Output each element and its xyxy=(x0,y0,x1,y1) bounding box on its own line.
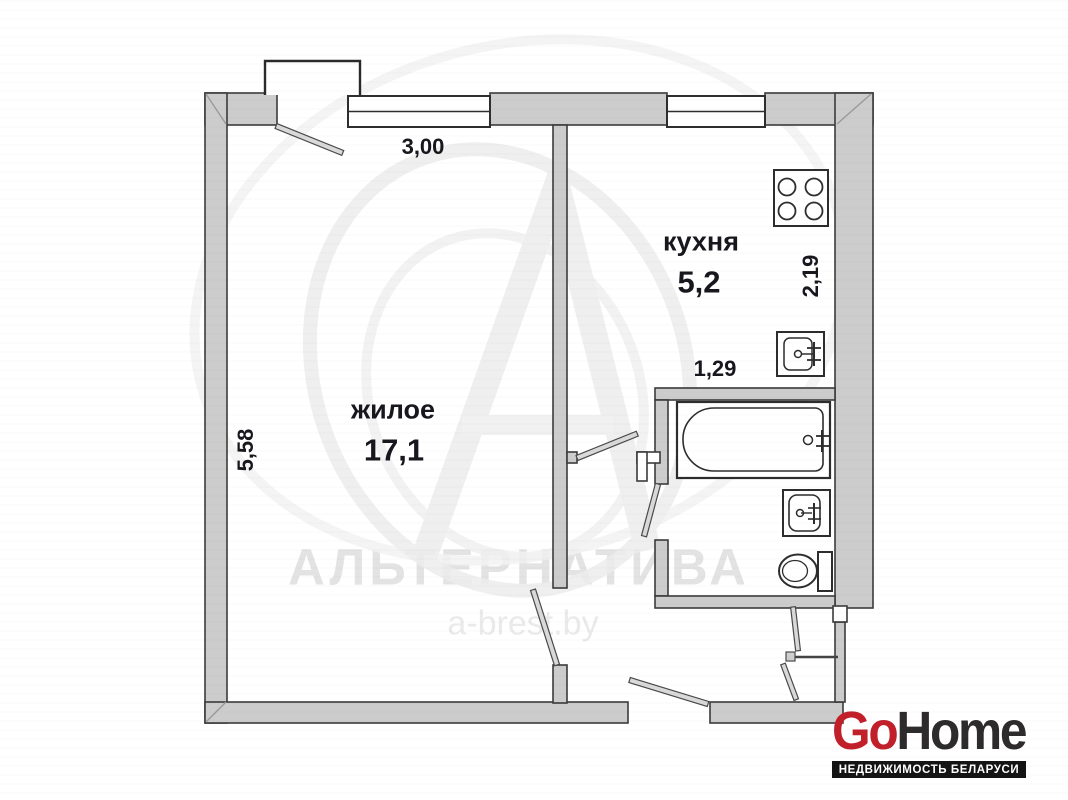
top-wall-mid-segment xyxy=(490,93,667,125)
dimension-kitchen-depth: 2,19 xyxy=(800,255,822,298)
floor-plan-page: АЛЬТЕРНАТИВА a-brest.by xyxy=(0,0,1068,800)
interior-wall-bottom-stub xyxy=(553,665,567,703)
bathroom-wall-top xyxy=(655,388,835,400)
gohome-logo: GoHome НЕДВИЖИМОСТЬ БЕЛАРУСИ xyxy=(832,704,1026,778)
bathroom-wall-bottom xyxy=(655,596,835,608)
closet-door-left-icon xyxy=(791,607,801,651)
dimension-top-width: 3,00 xyxy=(402,136,445,158)
balcony-outline xyxy=(265,61,360,95)
dimension-hall-width: 1,29 xyxy=(694,358,737,380)
closet-door-right-icon xyxy=(781,663,799,700)
interior-wall-stub xyxy=(567,452,577,463)
interior-wall xyxy=(553,125,567,588)
bottom-wall-right xyxy=(710,702,843,723)
bottom-wall-left xyxy=(205,702,628,723)
living-door-icon xyxy=(531,589,560,666)
toilet-icon xyxy=(779,552,832,591)
gohome-logo-wordmark: GoHome xyxy=(832,704,1010,758)
right-wall-white-stub xyxy=(833,606,847,622)
entrance-door-icon xyxy=(629,678,709,707)
right-wall-lower xyxy=(835,622,845,702)
gohome-logo-tagline: НЕДВИЖИМОСТЬ БЕЛАРУСИ xyxy=(832,761,1026,778)
kitchen-window-icon xyxy=(667,96,765,127)
kitchen-area: 5,2 xyxy=(677,267,720,298)
dimension-left-height: 5,58 xyxy=(235,429,257,472)
hall-column-vertical xyxy=(637,452,647,481)
stove-icon xyxy=(774,170,828,226)
kitchen-label: кухня xyxy=(663,229,739,256)
bathtub-icon xyxy=(677,402,830,478)
right-wall xyxy=(835,93,873,608)
bathroom-wall-left-lower xyxy=(655,540,668,596)
logo-home-text: Home xyxy=(896,701,1025,761)
living-window-icon xyxy=(348,96,490,127)
living-room-area: 17,1 xyxy=(364,435,424,466)
floor-plan-drawing xyxy=(0,0,1068,800)
left-wall xyxy=(205,93,227,723)
washbasin-icon xyxy=(783,490,830,536)
closet-hinge-block xyxy=(786,652,795,661)
bathroom-wall-left-upper xyxy=(655,400,668,484)
logo-go-text: Go xyxy=(832,701,896,761)
living-room-label: жилое xyxy=(351,397,435,424)
kitchen-sink-icon xyxy=(777,332,824,376)
